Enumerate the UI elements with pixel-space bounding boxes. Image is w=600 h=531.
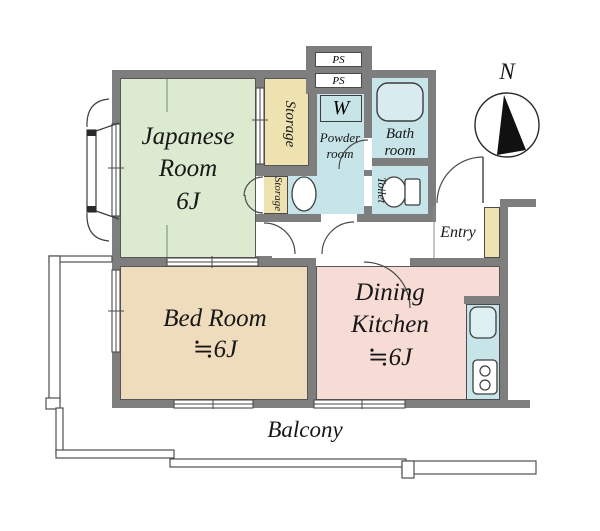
stove-burner-1 [480,366,490,376]
bedroom-size: ≒6J [130,337,300,363]
railing-left-notch [46,398,60,409]
toilet-door-opening [364,176,372,206]
bedroom-label: Bed Room [130,306,300,332]
floor-plan: PS PS W [0,0,600,531]
stove-burner-2 [480,380,490,390]
railing-left-band [49,256,60,403]
bay-window-sash [87,130,96,212]
bay-sash-cap-bottom [87,206,96,212]
dk-label-2: Kitchen [320,312,460,338]
powder-label-2: room [312,147,368,161]
japanese-room-size: 6J [118,189,258,215]
japanese-door-opening [256,222,264,256]
compass-north-label: N [482,60,532,84]
railing-bottom-band-3 [402,461,536,474]
bathtub-icon [377,83,423,121]
dk-size: ≒6J [320,345,460,371]
powder-door-opening [321,214,357,222]
entry-door-arc [437,157,483,203]
japanese-room-label-1: Japanese [118,124,258,150]
railing-bottom-band-1 [56,450,174,458]
bay-casement-arc-bottom [87,213,109,241]
powder-label-1: Powder [312,131,368,145]
toilet-icon [382,177,420,207]
railing-left-lower [56,408,63,453]
toilet-label: Toilet [373,150,387,230]
storage-small-label: Storage [269,154,283,234]
kitchen-sink-icon [470,307,496,338]
bay-sash-cap-top [87,130,96,136]
toilet-tank [405,179,420,205]
dk-label-1: Dining [320,280,460,306]
balcony-label: Balcony [235,418,375,442]
compass [475,93,539,157]
stove-icon [473,360,497,394]
bath-label-1: Bath [372,127,428,143]
japanese-room-label-2: Room [118,156,258,182]
bay-casement-arc-top [87,99,109,127]
railing-right-notch [402,461,414,478]
entry-label: Entry [430,225,486,242]
railing-bottom-band-2 [170,459,406,467]
powder-door-arc [322,222,354,254]
